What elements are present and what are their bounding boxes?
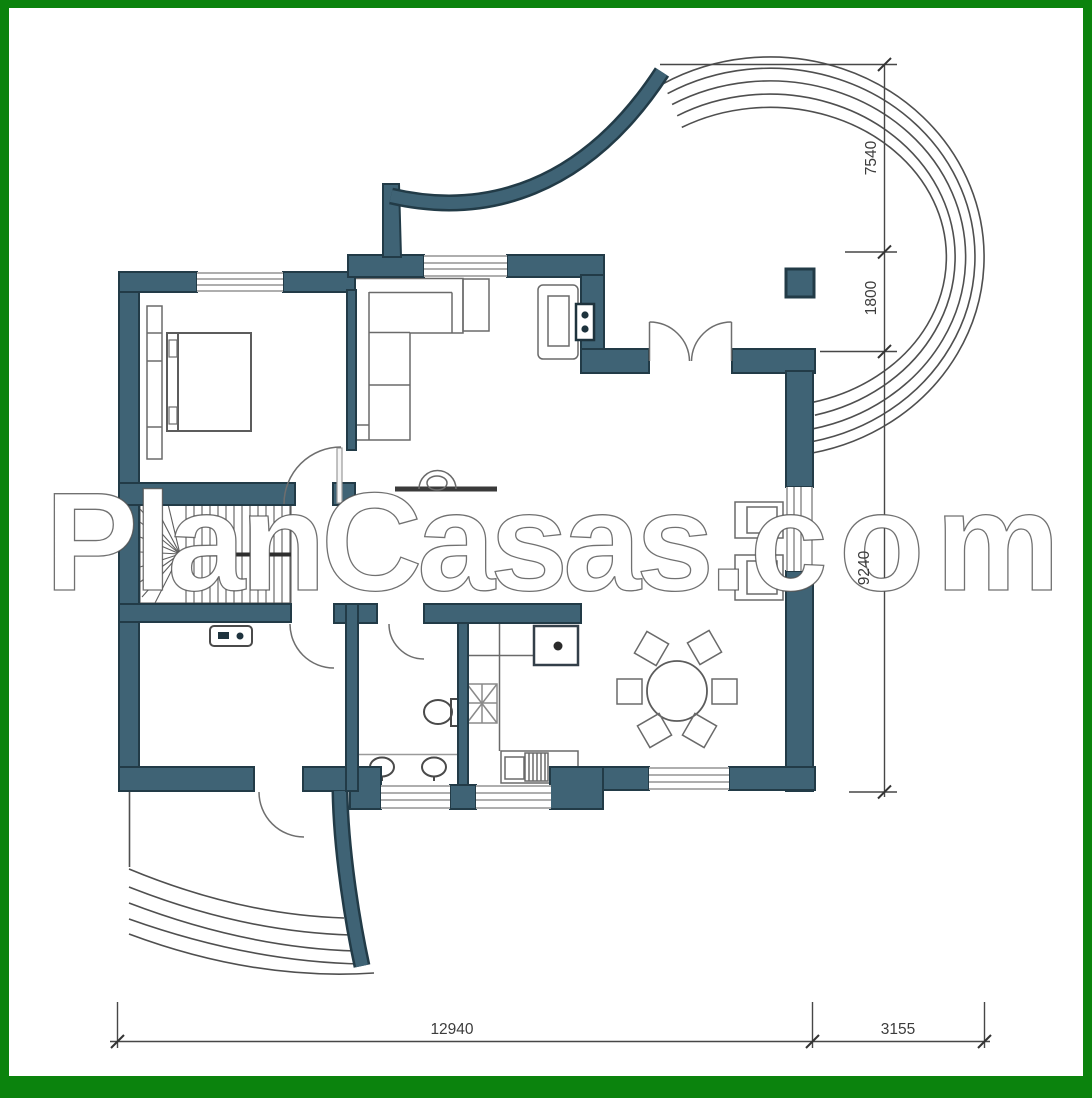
svg-text:3155: 3155 (881, 1021, 915, 1038)
svg-text:9240: 9240 (856, 550, 873, 585)
svg-text:com: com (750, 463, 1060, 620)
svg-text:PlanCasas.: PlanCasas. (45, 463, 748, 620)
svg-text:7540: 7540 (863, 140, 880, 175)
svg-text:12940: 12940 (430, 1021, 473, 1038)
svg-text:1800: 1800 (863, 280, 880, 315)
